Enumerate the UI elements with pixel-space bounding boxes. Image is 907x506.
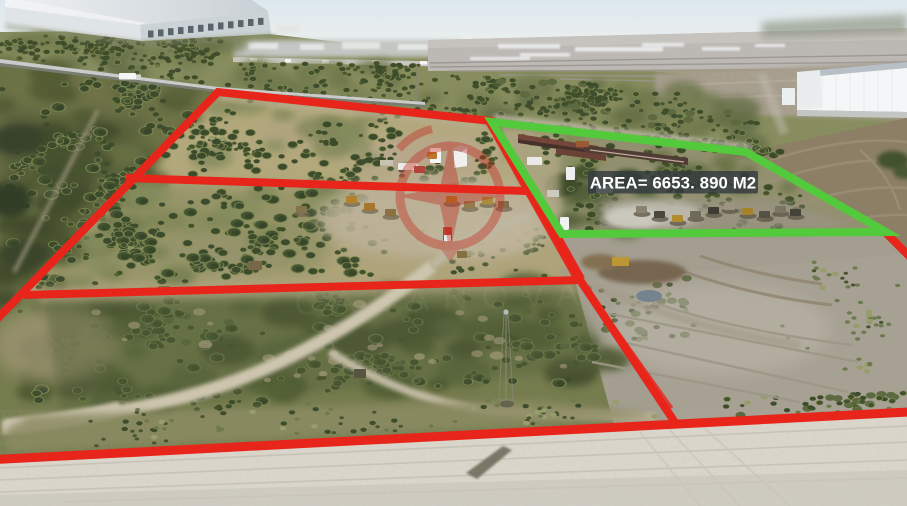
svg-text:AREA= 6653. 890 M2: AREA= 6653. 890 M2 <box>590 174 756 193</box>
